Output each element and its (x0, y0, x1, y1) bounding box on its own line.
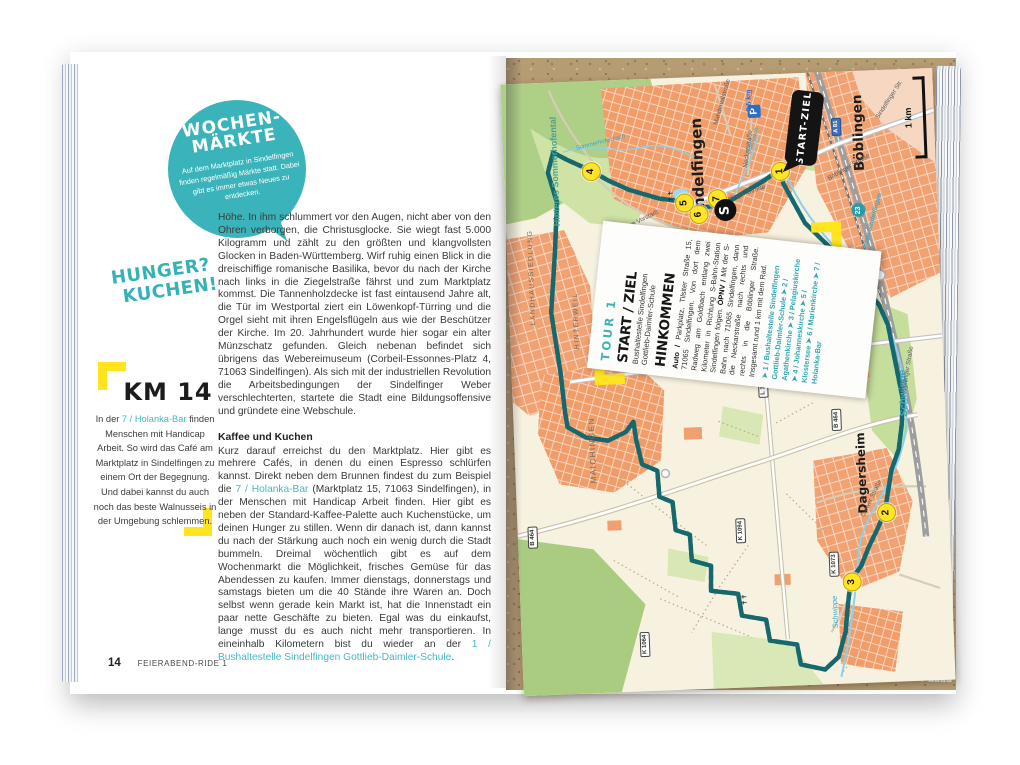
route-marker-5: 5 (674, 193, 694, 213)
holanka-bar-link: 7 / Holanka-Bar (122, 414, 187, 424)
section-heading: Kaffee und Kuchen (218, 432, 491, 444)
book-spread-photo: WOCHEN- MÄRKTE Auf dem Marktplatz in Sin… (0, 0, 1020, 765)
river-schwippe-2: Schwippe (830, 596, 840, 629)
parking-distance: 0.5 km (745, 89, 753, 111)
tour-map: ✝✝ ✝✝ Sindelfingen Böblingen Dagersheim … (500, 68, 955, 696)
badge-k1094: K 1094 (735, 518, 746, 544)
badge-b464-west: B 464 (527, 526, 538, 548)
page-footer: 14 FEIERABEND-RIDE 1 (108, 657, 227, 669)
paragraph-kaffee: Kurz darauf erreichst du den Marktplatz.… (218, 446, 491, 665)
left-page-fore-edge (62, 64, 79, 682)
tour-info-card: TOUR 1 START / ZIEL Bushaltestelle Sinde… (587, 221, 882, 399)
poi-list: ➤ 1 / Bushaltestelle Sindelfingen Gottli… (760, 249, 834, 385)
route-marker-2: 2 (876, 502, 896, 522)
ride-title: FEIERABEND-RIDE 1 (138, 659, 228, 668)
hinkommen-text: Auto / Parkplatz, Tilsiter Straße 15, 71… (670, 239, 770, 378)
badge-b464-east: B 464 (831, 409, 842, 431)
km-sidebar-text: In der 7 / Holanka-Bar finden Menschen m… (92, 412, 218, 529)
badge-a81: A 81 (831, 117, 842, 136)
main-text-column: Höhe. In ihm schlummert vor den Augen, n… (218, 212, 491, 665)
badge-k1064: K 1064 (640, 632, 651, 658)
svg-text:✝✝: ✝✝ (667, 190, 675, 202)
badge-k1073: K 1073 (829, 551, 840, 577)
svg-text:✝✝: ✝✝ (740, 594, 748, 606)
route-marker-3: 3 (842, 572, 862, 592)
holanka-bar-link-2: 7 / Holanka-Bar (236, 484, 309, 495)
scale-label: 1 km (903, 107, 914, 128)
map-scale-bar: 1 km (904, 76, 929, 159)
paragraph-basilika: Höhe. In ihm schlummert vor den Augen, n… (218, 212, 491, 419)
km-heading: KM 14 (118, 378, 218, 406)
page-number: 14 (108, 657, 121, 669)
route-marker-4: 4 (581, 161, 601, 181)
spine-shadow (506, 58, 522, 690)
